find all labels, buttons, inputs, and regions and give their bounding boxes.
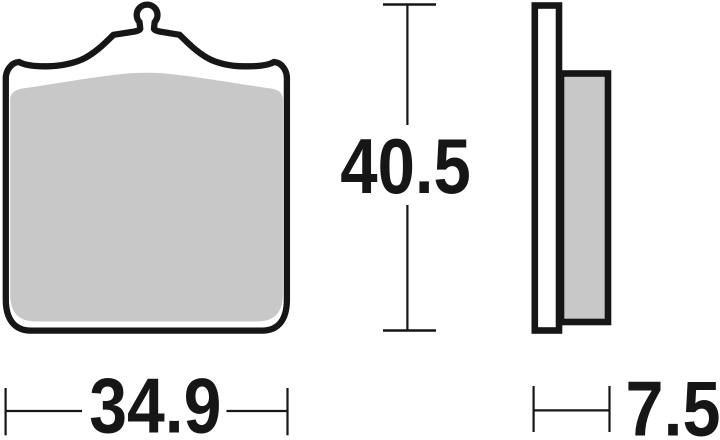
svg-text:40.5: 40.5 bbox=[340, 124, 471, 210]
svg-text:7.5: 7.5 bbox=[626, 367, 720, 440]
svg-text:34.9: 34.9 bbox=[89, 364, 221, 440]
